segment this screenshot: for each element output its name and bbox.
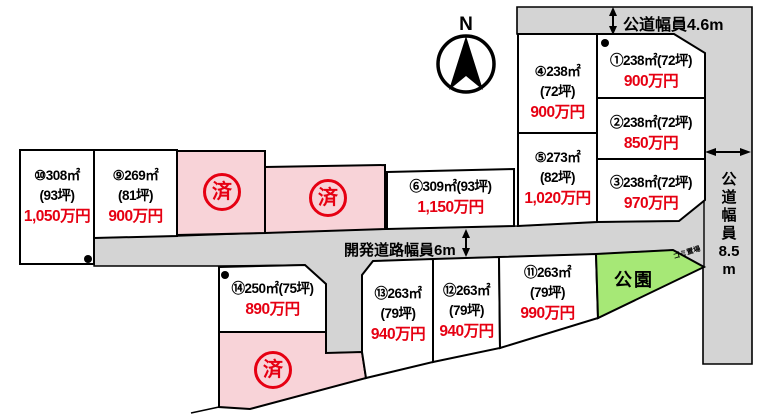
lot-area: ④238㎡	[518, 62, 597, 82]
sold-text: 済	[318, 187, 338, 209]
land-plot-map: N 公道幅員4.6m 開発道路幅員6m 公 道 幅 員 8.5 m 公園 ゴミ置…	[0, 0, 768, 414]
lot-price: 990万円	[499, 303, 596, 324]
lot-2-label: ②238㎡(72坪) 850万円	[597, 113, 705, 154]
lot-area: ⑫263㎡	[433, 281, 500, 301]
lot-price: 900万円	[597, 71, 705, 92]
lot-price: 940万円	[433, 321, 500, 342]
sold-badge-bottom: 済	[254, 351, 292, 389]
lot-tsubo: (72坪)	[518, 82, 597, 102]
lot-9-label: ⑨269㎡ (81坪) 900万円	[94, 166, 177, 227]
sold-badge-lot8: 済	[203, 173, 241, 211]
lot-6-label: ⑥309㎡(93坪) 1,150万円	[387, 177, 514, 218]
lot-tsubo: (82坪)	[518, 168, 597, 188]
boundary-point-dot	[84, 255, 92, 263]
lot-area: ②238㎡(72坪)	[597, 113, 705, 133]
road-right-char: 員	[714, 225, 744, 243]
north-label: N	[452, 14, 480, 36]
lot-tsubo: (81坪)	[94, 186, 177, 206]
lot-11-label: ⑪263㎡ (79坪) 990万円	[499, 263, 596, 324]
lot-5-label: ⑤273㎡ (82坪) 1,020万円	[518, 148, 597, 209]
lot-area: ⑪263㎡	[499, 263, 596, 283]
lot-area: ①238㎡(72坪)	[597, 51, 705, 71]
lot-price: 850万円	[597, 133, 705, 154]
lot-12-label: ⑫263㎡ (79坪) 940万円	[433, 281, 500, 342]
lot-area: ⑩308㎡	[20, 166, 94, 186]
sold-text: 済	[263, 359, 283, 381]
lot-10-label: ⑩308㎡ (93坪) 1,050万円	[20, 166, 94, 227]
lot-area: ③238㎡(72坪)	[597, 173, 705, 193]
lot-price: 970万円	[597, 193, 705, 214]
lot-4-label: ④238㎡ (72坪) 900万円	[518, 62, 597, 123]
lot-price: 1,020万円	[518, 188, 597, 209]
road-right-char: 道	[714, 189, 744, 207]
road-right-char: 公	[714, 171, 744, 189]
lot-price: 940万円	[362, 324, 434, 345]
lot-3-label: ③238㎡(72坪) 970万円	[597, 173, 705, 214]
sold-badge-lot7: 済	[309, 179, 347, 217]
lot-area: ⑬263㎡	[362, 284, 434, 304]
lot-area: ⑨269㎡	[94, 166, 177, 186]
lot-price: 1,150万円	[387, 197, 514, 218]
lot-area: ⑥309㎡(93坪)	[387, 177, 514, 197]
lot-price: 900万円	[518, 102, 597, 123]
lot-tsubo: (79坪)	[433, 301, 500, 321]
site-boundary-line	[191, 407, 219, 413]
lot-tsubo: (79坪)	[362, 304, 434, 324]
lot-13-label: ⑬263㎡ (79坪) 940万円	[362, 284, 434, 345]
road-right-char: m	[714, 261, 744, 279]
compass-icon	[438, 36, 494, 92]
lot-tsubo: (79坪)	[499, 283, 596, 303]
lot-14-label: ⑭250㎡(75坪) 890万円	[219, 279, 326, 320]
lot-area: ⑤273㎡	[518, 148, 597, 168]
sold-text: 済	[212, 181, 232, 203]
lot-price: 1,050万円	[20, 206, 94, 227]
lot-price: 900万円	[94, 206, 177, 227]
lot-tsubo: (93坪)	[20, 186, 94, 206]
road-width-right-label: 公 道 幅 員 8.5 m	[714, 171, 744, 279]
road-width-top-label: 公道幅員4.6m	[623, 11, 723, 35]
boundary-point-dot	[221, 271, 229, 279]
lot-1-label: ①238㎡(72坪) 900万円	[597, 51, 705, 92]
boundary-point-dot	[601, 39, 609, 47]
road-right-char: 8.5	[714, 243, 744, 261]
lot-price: 890万円	[219, 299, 326, 320]
road-width-dev-label: 開発道路幅員6m	[344, 239, 456, 260]
park-label: 公園	[598, 266, 670, 292]
road-right-char: 幅	[714, 207, 744, 225]
lot-area: ⑭250㎡(75坪)	[219, 279, 326, 299]
